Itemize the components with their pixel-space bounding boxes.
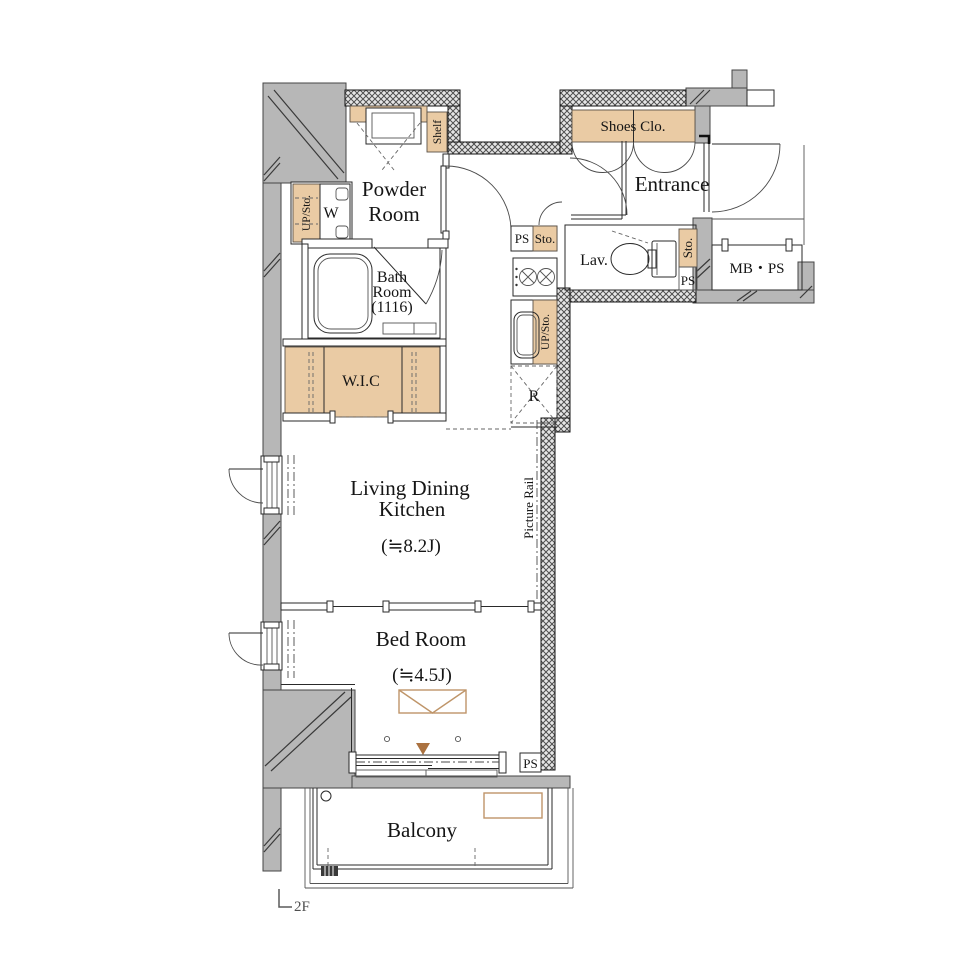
neighbor-alcove [747, 90, 774, 106]
window-marker [384, 736, 389, 741]
floor-label: 2F [294, 899, 310, 915]
entrance-door-arc [712, 144, 780, 212]
concrete-mbps-bottom [693, 290, 814, 303]
wic-right-wall [440, 346, 446, 421]
kitchen-sto-door-arc [539, 202, 562, 225]
balcony-label: Balcony [387, 818, 457, 842]
kitchen: PS Sto. UP/Sto. R [446, 202, 562, 429]
room-wic: W.I.C [283, 339, 446, 423]
wall-stub [443, 231, 449, 239]
bath-left-wall [302, 244, 308, 339]
ac-unit-pad [484, 793, 542, 818]
kitchen-ps-label: PS [515, 231, 529, 246]
ldk-size-label: (≒8.2J) [381, 536, 441, 557]
floor-mark: 2F [279, 889, 310, 915]
laundry-storage-label: UP/Sto. [301, 195, 313, 231]
curtain-box-dashes [288, 455, 294, 517]
ldk-bed-partition [281, 601, 541, 612]
washer-label: W [323, 205, 339, 222]
entrance-label: Entrance [635, 172, 710, 196]
bath-label-3: (1116) [371, 299, 412, 316]
concrete-band-left-3 [263, 670, 281, 690]
wic-bottom-wall [283, 413, 333, 421]
ldk-label-2: Kitchen [379, 497, 446, 521]
window-marker [455, 736, 460, 741]
floor-mark-corner [279, 889, 292, 907]
bathtub-icon [314, 254, 372, 333]
kitchen-sto-label: Sto. [535, 231, 556, 246]
shelf-label: Shelf [432, 120, 444, 144]
alcove-boundary [712, 145, 804, 245]
lav-door-arc [570, 158, 627, 215]
balcony-sliding-window [349, 752, 506, 777]
bath-top-wall [428, 239, 448, 248]
drain-icon [321, 791, 331, 801]
bed-window-frame [261, 622, 282, 670]
floor-plan-page: Shelf UP/Sto. W Powder Room Bath Room (1… [0, 0, 960, 960]
balcony: Balcony [305, 788, 573, 888]
shoes-closet-door-arcs [572, 142, 695, 173]
mbps-label: MB・PS [729, 261, 784, 277]
picture-rail-label: Picture Rail [521, 477, 536, 539]
wic-label: W.I.C [342, 373, 380, 390]
bath-counter [383, 323, 436, 334]
floor-plan: Shelf UP/Sto. W Powder Room Bath Room (1… [0, 0, 960, 960]
entrance-step-edge [571, 141, 626, 219]
ldk-window-swing-arc [229, 469, 263, 503]
powder-door-leaf [441, 166, 446, 233]
bed-size-label: (≒4.5J) [392, 665, 452, 686]
hanging-closet-symbol [399, 690, 466, 713]
balcony-access-triangle [416, 743, 430, 755]
toilet-icon [611, 244, 649, 275]
bath-top-wall [302, 239, 372, 248]
concrete-top-right-stub [732, 70, 747, 88]
lav-ps-label: PS [681, 273, 695, 288]
concrete-band-left-1 [263, 183, 281, 456]
fridge-label: R [529, 388, 540, 405]
lav-sto-label: Sto. [680, 238, 695, 259]
ldk-window-frame [261, 456, 282, 514]
bed-label: Bed Room [376, 627, 466, 651]
facade-windows [229, 455, 294, 678]
room-ldk: Living Dining Kitchen (≒8.2J) Picture Ra… [350, 420, 537, 601]
toilet-lid-dash [612, 231, 648, 243]
bed-window-swing-arc [229, 633, 263, 665]
powder-door-arc [446, 166, 511, 231]
lav-label: Lav. [580, 252, 608, 269]
bed-ps-label: PS [523, 756, 537, 771]
concrete-block-bottom-left [263, 690, 355, 788]
mbps: MB・PS [712, 239, 802, 290]
room-bath: Bath Room (1116) [302, 239, 448, 339]
concrete-top-right-band [686, 88, 747, 106]
powder-room-label-1: Powder [362, 177, 426, 201]
shoes-closet-label: Shoes Clo. [600, 119, 665, 135]
kitchen-storage-label: UP/Sto. [540, 314, 552, 350]
balcony-sill-slab [352, 776, 570, 788]
powder-room-label-2: Room [368, 202, 419, 226]
wic-bottom-wall [391, 413, 446, 421]
wic-top-wall [283, 339, 446, 346]
curtain-box-dashes [288, 620, 294, 678]
